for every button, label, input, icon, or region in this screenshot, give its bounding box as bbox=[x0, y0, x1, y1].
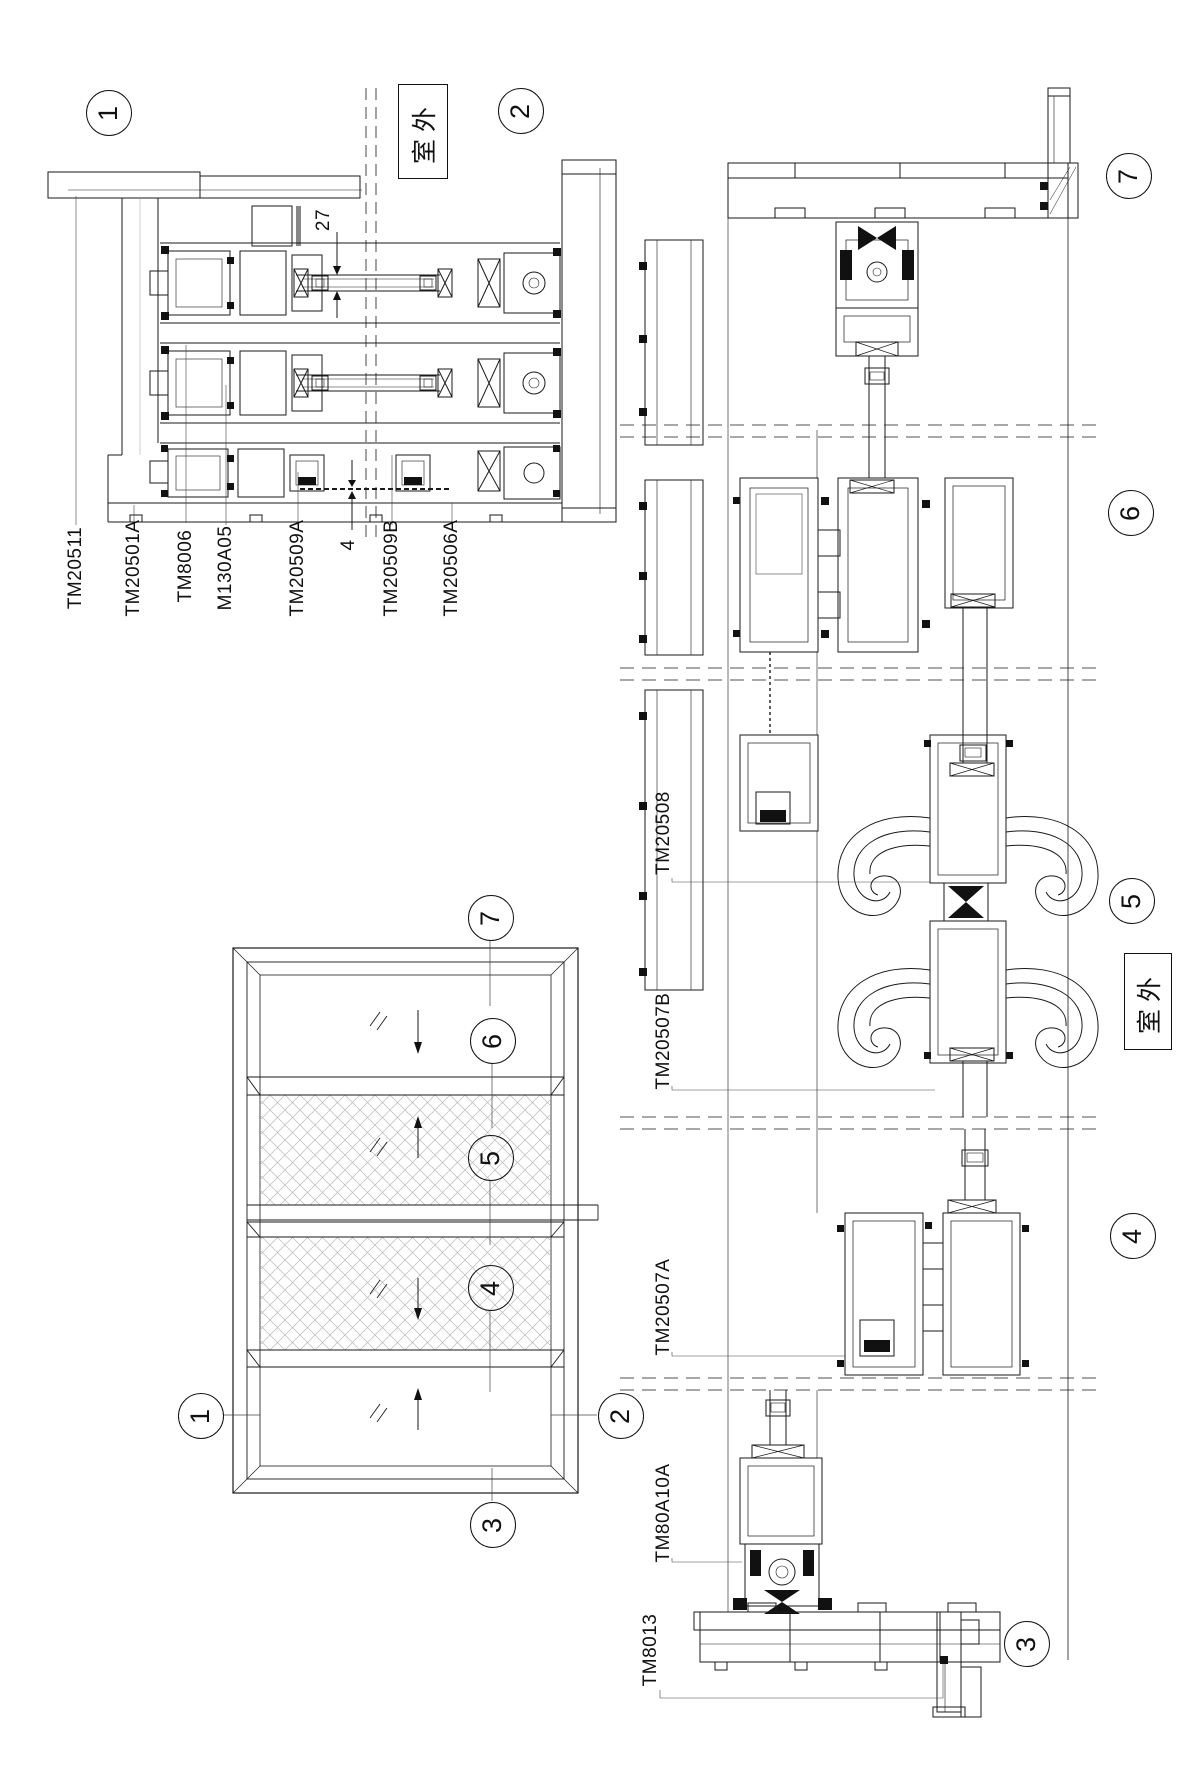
callout-elevation-1: 1 bbox=[178, 1393, 224, 1439]
part-label-tm8006: TM8006 bbox=[175, 530, 197, 603]
part-label-tm20509b: TM20509B bbox=[381, 520, 403, 617]
outdoor-label-box-right: 室外 bbox=[1124, 953, 1172, 1050]
part-label-tm20509a: TM20509A bbox=[287, 520, 309, 617]
callout-section-b-3: 3 bbox=[1004, 1621, 1050, 1667]
part-label-tm20511: TM20511 bbox=[65, 527, 87, 609]
callout-section-a-2: 2 bbox=[498, 88, 544, 134]
dimension-4: 4 bbox=[338, 539, 360, 550]
part-label-tm20508: TM20508 bbox=[653, 791, 675, 875]
callout-section-b-6: 6 bbox=[1108, 490, 1154, 536]
part-label-m130a05: M130A05 bbox=[215, 526, 237, 611]
part-label-tm80a10a: TM80A10A bbox=[653, 1463, 675, 1562]
part-label-tm20506a: TM20506A bbox=[441, 520, 463, 617]
part-label-tm8013: TM8013 bbox=[640, 1614, 662, 1687]
elevation-drawing bbox=[150, 880, 620, 1580]
callout-elevation-3: 3 bbox=[470, 1502, 516, 1548]
part-label-tm20501a: TM20501A bbox=[123, 520, 145, 617]
drawing-sheet: 1 2 7 6 5 4 1 2 3 7 6 5 4 3 室外 室外 27 4 T… bbox=[0, 0, 1200, 1772]
callout-elevation-5: 5 bbox=[468, 1135, 514, 1181]
outdoor-label-box-top: 室外 bbox=[398, 84, 448, 179]
callout-section-a-1: 1 bbox=[86, 90, 132, 136]
callout-elevation-2: 2 bbox=[598, 1393, 644, 1439]
part-label-tm20507a: TM20507A bbox=[653, 1259, 675, 1356]
callout-section-b-4: 4 bbox=[1110, 1213, 1156, 1259]
vertical-section-drawing bbox=[600, 60, 1200, 1772]
callout-section-b-5: 5 bbox=[1109, 878, 1155, 924]
callout-elevation-4: 4 bbox=[468, 1265, 514, 1311]
dimension-27: 27 bbox=[313, 209, 335, 231]
callout-elevation-6: 6 bbox=[470, 1018, 516, 1064]
callout-section-b-7: 7 bbox=[1106, 153, 1152, 199]
callout-elevation-7: 7 bbox=[468, 895, 514, 941]
part-label-tm20507b: TM20507B bbox=[653, 993, 675, 1090]
